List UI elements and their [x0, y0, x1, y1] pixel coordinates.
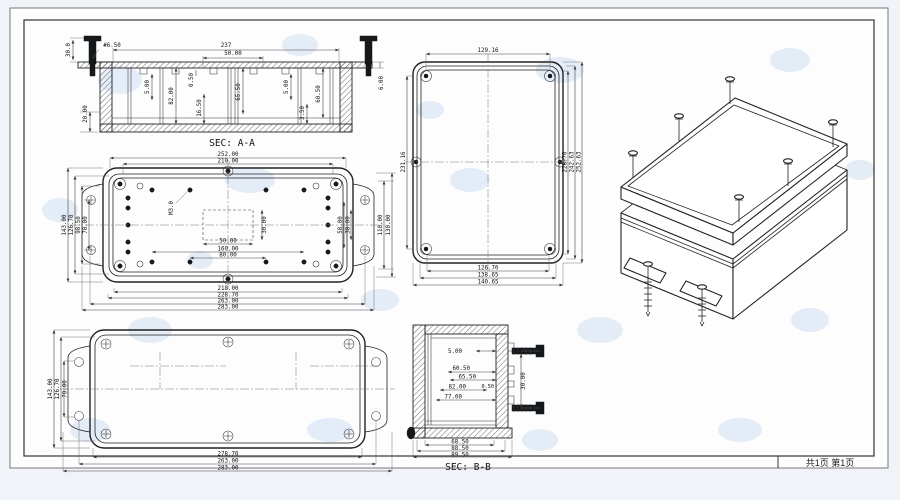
dim-bb-2: 65.50 — [459, 375, 477, 381]
dim-bb-bottom-1: 68.50 — [451, 440, 469, 446]
dim-plan-right-1: 110.00 — [378, 214, 384, 235]
dim-boss-height: 16.50 — [197, 99, 203, 117]
dim-plan-bottom-1: 218.00 — [218, 286, 239, 292]
page-info: 共1页 第1页 — [806, 457, 855, 468]
dim-lid-left-1: 143.00 — [48, 378, 54, 399]
dim-plan-left-4: 70.00 — [83, 216, 89, 234]
dim-plan-left-1: 143.00 — [62, 214, 68, 235]
dim-rib-right: 5.00 — [284, 80, 290, 94]
dim-mid-height: 65.50 — [236, 83, 242, 101]
dim-slot-width: 50.00 — [224, 51, 242, 57]
dim-plan-top-1: 252.00 — [218, 152, 239, 158]
dim-center-rect-height: 30.00 — [262, 216, 268, 234]
dim-boss-span-right-1: 58.00 — [338, 216, 344, 234]
dim-depth: 82.00 — [169, 87, 175, 105]
dim-bb-gap: 0.50 — [482, 384, 495, 390]
drawing-sheet-page: 30.0 #6.50 237 50.00 5.00 82.00 0.50 16.… — [0, 0, 900, 500]
dim-side-right-3: 252.63 — [577, 151, 583, 172]
dim-lid-bottom-1: 278.70 — [218, 452, 239, 458]
dim-lip: 0.50 — [189, 73, 195, 87]
dim-lid-bottom-3: 283.00 — [218, 466, 239, 472]
dim-boss-span-right-2: 38.00 — [346, 216, 352, 234]
dim-lid-left-3: 70.00 — [63, 380, 69, 398]
dim-wall: 3.50 — [300, 106, 306, 120]
dim-screw-length: 30.0 — [66, 43, 72, 57]
dim-bb-bottom-3: 89.50 — [451, 453, 469, 459]
dim-rib-left: 5.00 — [145, 80, 151, 94]
dim-side-bottom-2: 138.65 — [478, 273, 499, 279]
dim-plan-bottom-4: 283.00 — [218, 305, 239, 311]
dim-hole-diameter: #6.50 — [103, 43, 121, 49]
dim-side-right-1: 228.70 — [563, 151, 569, 172]
thread-callout: M3.0 — [169, 201, 175, 215]
dim-plan-top-2: 210.00 — [218, 159, 239, 165]
dim-center-rect-width: 50.00 — [219, 239, 237, 245]
dim-side-bottom-3: 140.65 — [478, 280, 499, 286]
dim-bb-top: 5.00 — [448, 349, 462, 355]
dim-plan-left-3: 98.50 — [76, 216, 82, 234]
dim-base-height: 20.00 — [83, 105, 89, 123]
dim-side-left: 231.16 — [401, 151, 407, 172]
dim-right-height: 60.50 — [316, 85, 322, 103]
dim-flange: 6.00 — [379, 76, 385, 90]
dim-bb-4: 77.00 — [445, 395, 463, 401]
dim-bb-3: 82.00 — [449, 385, 467, 391]
dim-side-bottom-1: 126.70 — [478, 266, 499, 272]
section-aa-caption: SEC: A-A — [209, 138, 255, 149]
cad-drawing-canvas: 30.0 #6.50 237 50.00 5.00 82.00 0.50 16.… — [0, 0, 900, 500]
section-bb-caption: SEC: B-B — [445, 462, 491, 473]
dim-plan-left-2: 126.70 — [69, 214, 75, 235]
dim-top-width: 237 — [221, 43, 232, 49]
dim-plan-right-2: 130.00 — [386, 214, 392, 235]
dim-bb-vertical: 30.00 — [521, 372, 527, 390]
dim-side-top: 129.16 — [478, 48, 499, 54]
dim-boss-span-inner: 80.00 — [219, 253, 237, 259]
dim-side-right-2: 242.63 — [570, 151, 576, 172]
dim-lid-bottom-2: 263.00 — [218, 459, 239, 465]
dim-lid-left-2: 126.70 — [55, 378, 61, 399]
dim-bb-1: 60.50 — [453, 366, 471, 372]
dim-bb-bottom-2: 88.50 — [451, 446, 469, 452]
